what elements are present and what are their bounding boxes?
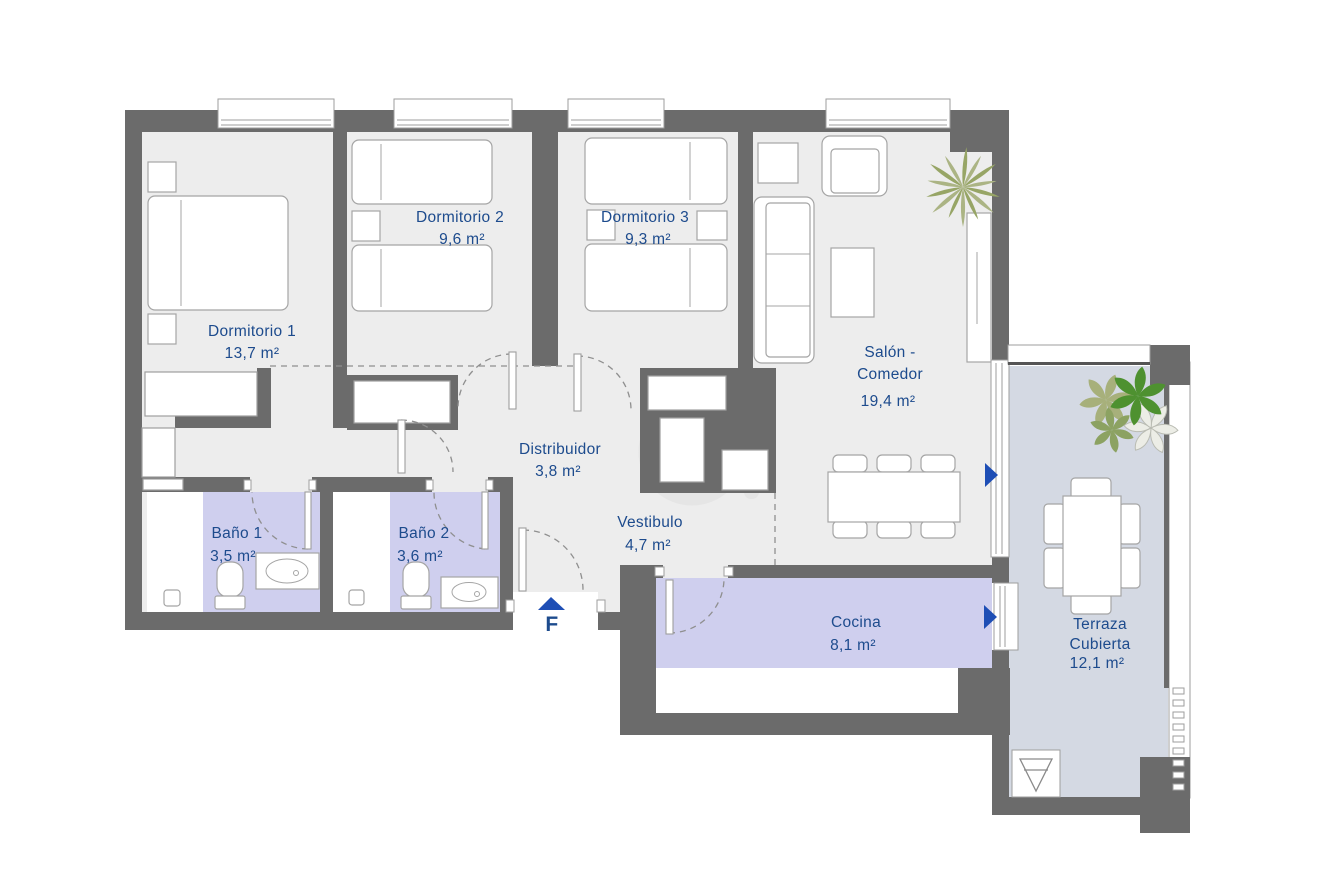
dining-set [828,455,960,538]
single-bed [352,245,492,311]
nightstand [148,314,176,344]
shaft-left [142,428,175,477]
window-dormitorio2 [394,99,512,128]
label-distribuidor-area: 3,8 m² [535,463,581,480]
label-bano1-area: 3,5 m² [210,548,256,565]
terrace-railing [1173,688,1184,790]
window-salon-terrace [991,360,1009,557]
window-dormitorio3 [568,99,664,128]
dining-table [828,472,960,522]
label-terraza-area: 12,1 m² [1070,655,1125,672]
armchair-seat [831,149,879,193]
wall-d1-d2 [333,125,347,428]
side-table [758,143,798,183]
jamb [309,480,316,490]
door-leaf-d1 [398,420,405,473]
terrace-chair [1119,548,1140,588]
label-salon-2: Comedor [857,366,923,383]
shaft-vestibulo [722,450,768,490]
dining-chair [877,455,911,472]
wall-cocina-top [728,565,992,578]
wall-right-mid [992,557,1009,583]
label-salon-area: 19,4 m² [861,393,916,410]
closet-strip-left [143,479,183,490]
wall-wing-bottom [620,713,1010,735]
coffee-table [831,248,874,317]
window-salon-top [826,99,950,128]
toilet-icon [401,562,431,609]
entrance-marker-label: F [545,613,558,636]
label-distribuidor: Distribuidor [519,441,601,458]
drain-icon [1012,750,1060,797]
closet-dormitorio1 [145,372,257,416]
wall-bottom-left [125,612,513,630]
wall-wing-right [958,668,1010,713]
wall-d2-d3 [532,132,558,366]
wall-terrace-top-right [1150,345,1190,385]
label-salon-1: Salón - [864,344,915,361]
closet-vestibulo [660,418,704,482]
jamb [597,600,605,612]
terrace-table [1063,496,1121,596]
shower-drain-icon [164,590,180,606]
door-leaf-cocina [666,580,673,634]
nightstand [148,162,176,192]
label-terraza-1: Terraza [1073,616,1127,633]
door-leaf-entrance [519,528,526,591]
double-bed [148,196,288,310]
wall-vestibulo-column [620,565,656,735]
nightstand [352,211,380,241]
wall-left [125,110,142,630]
label-vestibulo-area: 4,7 m² [625,537,671,554]
wall-salon-right [992,110,1009,362]
floor-plan: Dormitorio 1 13,7 m² Dormitorio 2 9,6 m²… [0,0,1320,895]
dining-chair [833,455,867,472]
sink-icon [256,553,319,589]
label-dormitorio1-area: 13,7 m² [225,345,280,362]
wall-d1-closet-bottom [175,415,270,428]
label-bano2: Baño 2 [399,525,450,542]
label-dormitorio2-area: 9,6 m² [439,231,485,248]
single-bed [585,138,727,204]
nightstand [697,211,727,240]
jamb [724,567,733,576]
wall-pier-d2-d3 [512,110,568,132]
jamb [426,480,433,490]
dining-chair [921,521,955,538]
label-bano2-area: 3,6 m² [397,548,443,565]
jamb [655,567,664,576]
jamb [506,600,514,612]
label-cocina: Cocina [831,614,881,631]
dining-chair [921,455,955,472]
terrace-chair [1119,504,1140,544]
wall-bano-divider [320,477,333,628]
jamb [244,480,251,490]
label-dormitorio2: Dormitorio 2 [416,209,504,226]
floor-plan-page: Dormitorio 1 13,7 m² Dormitorio 2 9,6 m²… [0,0,1320,895]
closet-dormitorio2 [354,381,450,423]
dining-chair [833,521,867,538]
label-vestibulo: Vestibulo [617,514,683,531]
single-bed [585,244,727,311]
terrace-chair [1044,548,1065,588]
dining-chair [877,521,911,538]
wall-corner-salon [950,132,992,152]
door-leaf-bano2 [482,492,488,549]
terrace-roof-edge [1008,345,1150,365]
label-bano1: Baño 1 [212,525,263,542]
single-bed [352,140,492,204]
label-dormitorio3-area: 9,3 m² [625,231,671,248]
toilet-icon [215,562,245,609]
label-cocina-area: 8,1 m² [830,637,876,654]
wall-entrance-stub [598,612,622,630]
cocina-floor [656,578,992,668]
window-cocina-terrace [994,583,1018,650]
wall-d3-salon [738,132,753,368]
sideboard [967,213,991,362]
closet-dormitorio3 [648,376,726,410]
label-dormitorio3: Dormitorio 3 [601,209,689,226]
label-terraza-2: Cubierta [1070,636,1131,653]
door-leaf-d2 [509,352,516,409]
shower-drain-icon [349,590,364,605]
rear-gallery [656,668,958,713]
door-leaf-bano1 [305,492,311,549]
door-leaf-d3 [574,354,581,411]
jamb [486,480,493,490]
sofa-seats [766,203,810,357]
sink-icon [441,577,498,608]
label-dormitorio1: Dormitorio 1 [208,323,296,340]
window-dormitorio1 [218,99,334,128]
terrace-chair [1044,504,1065,544]
wall-terrace-bottom-right [1140,757,1190,833]
